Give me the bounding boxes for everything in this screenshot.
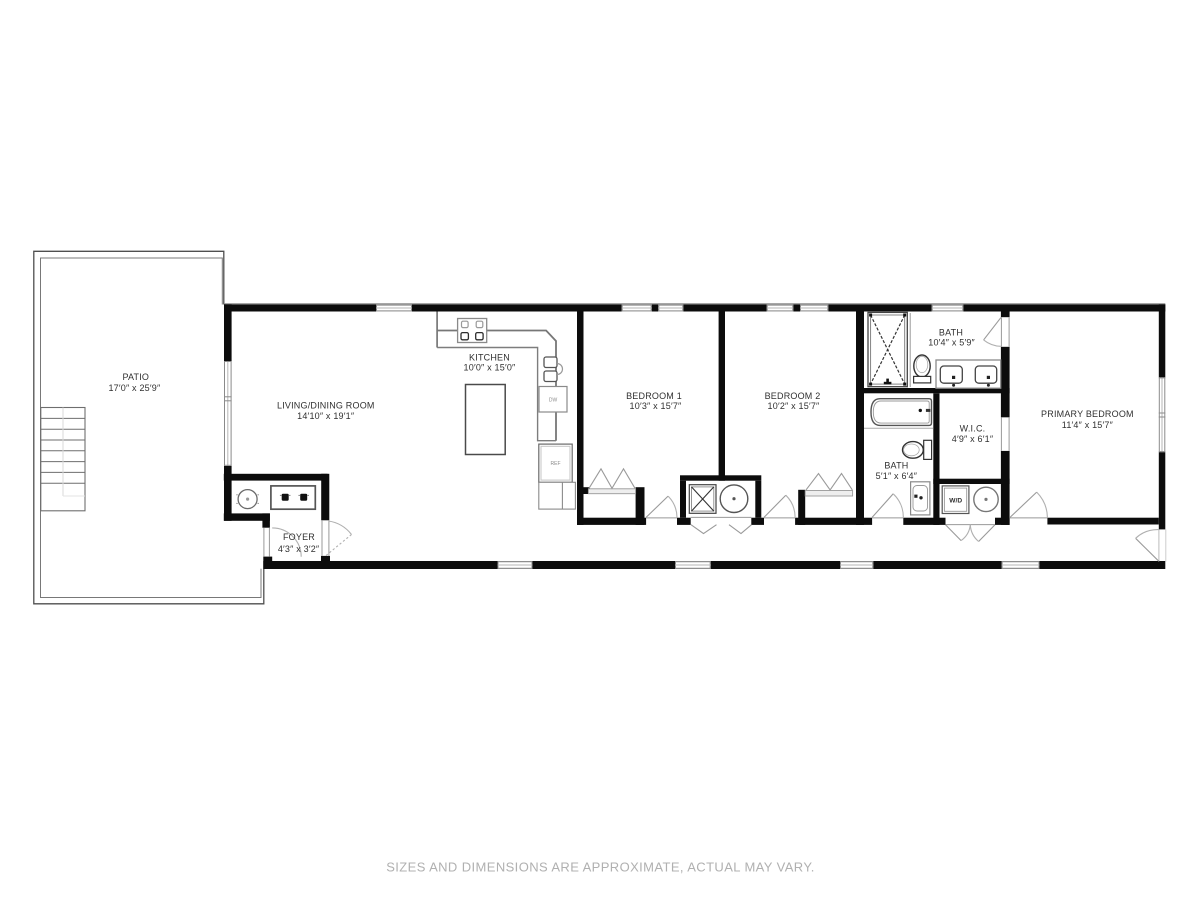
svg-text:DW: DW — [549, 397, 558, 403]
svg-text:5′1″ x 6′4″: 5′1″ x 6′4″ — [876, 471, 918, 481]
svg-text:PRIMARY BEDROOM: PRIMARY BEDROOM — [1041, 409, 1134, 419]
svg-text:W.I.C.: W.I.C. — [960, 424, 986, 434]
svg-text:4′3″ x 3′2″: 4′3″ x 3′2″ — [278, 544, 320, 554]
svg-text:BATH: BATH — [939, 327, 963, 337]
svg-text:14′10″ x 19′1″: 14′10″ x 19′1″ — [297, 411, 355, 421]
svg-text:W/D: W/D — [949, 498, 962, 505]
svg-text:10′0″ x 15′0″: 10′0″ x 15′0″ — [464, 363, 516, 373]
svg-text:LIVING/DINING ROOM: LIVING/DINING ROOM — [277, 400, 375, 410]
svg-text:10′4″ x 5′9″: 10′4″ x 5′9″ — [928, 338, 975, 348]
svg-text:BATH: BATH — [884, 461, 908, 471]
svg-text:11′4″ x 15′7″: 11′4″ x 15′7″ — [1062, 420, 1114, 430]
svg-text:KITCHEN: KITCHEN — [469, 353, 510, 363]
svg-text:17′0″ x 25′9″: 17′0″ x 25′9″ — [108, 383, 160, 393]
svg-text:10′3″ x 15′7″: 10′3″ x 15′7″ — [630, 401, 682, 411]
svg-text:PATIO: PATIO — [122, 372, 149, 382]
svg-text:10′2″ x 15′7″: 10′2″ x 15′7″ — [768, 401, 820, 411]
svg-text:BEDROOM 2: BEDROOM 2 — [765, 391, 821, 401]
svg-text:BEDROOM 1: BEDROOM 1 — [626, 391, 682, 401]
svg-text:4′9″ x 6′1″: 4′9″ x 6′1″ — [952, 434, 994, 444]
svg-text:SIZES AND DIMENSIONS ARE APPRO: SIZES AND DIMENSIONS ARE APPROXIMATE, AC… — [386, 860, 815, 875]
svg-text:REF: REF — [551, 461, 561, 467]
svg-text:FOYER: FOYER — [283, 532, 315, 542]
